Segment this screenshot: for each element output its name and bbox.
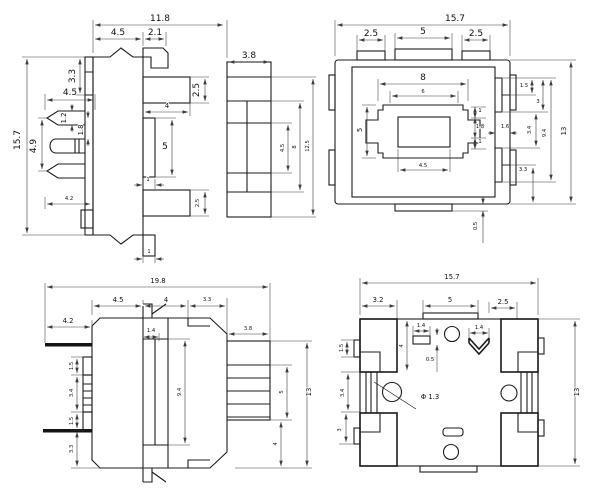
dimension-label: 8 [292,145,298,148]
vent-slot [413,336,430,344]
center-hole [398,117,450,147]
top-view-extension-lines [335,20,576,211]
dimension-label: 2.5 [469,29,483,39]
dimension-label: Φ 1.3 [421,393,439,401]
dimension-label: 1.4 [417,323,426,329]
corner-block-bl [360,413,397,466]
dimension-label: 1.5 [69,417,75,425]
mid-left-terminal-lines [366,372,371,413]
dimension-label: 0.5 [426,357,434,363]
dimension-label: 1.2 [60,113,68,124]
actuator-opening [366,105,480,158]
dimension-label: 2.5 [195,199,201,207]
dimension-label: 0.5 [473,222,479,230]
hole-left [383,383,402,402]
bottom-view-part [354,313,544,472]
lower-right-block [143,190,190,216]
right-bump-lower [510,150,516,185]
left-block-lower [83,412,92,430]
dimension-label: 19.8 [150,277,165,285]
top-view: 15.72.552.58654.511.811.61.533.49.4133.3… [329,14,576,243]
bottom-hook [143,468,166,482]
dimension-label: 9.4 [177,387,183,396]
dimension-label: 4 [399,344,405,348]
top-hook [143,48,168,68]
top-tab [423,313,478,319]
corner-block-bl-step [360,413,380,432]
side-housing-lines [227,77,271,192]
locating-boss-right [501,385,517,401]
dimension-label: 4.9 [29,139,39,154]
left-bump-upper [354,340,360,357]
dimension-label: 4.5 [63,88,77,98]
connector-face [227,341,270,420]
dimension-label: 4.5 [111,28,125,38]
corner-block-br-step [518,413,538,432]
bottom-tab [420,466,477,472]
mid-right-terminal [521,372,538,413]
dimension-label: 15.7 [444,273,459,281]
dimension-label: 3.3 [68,69,78,83]
dimension-label: 1 [478,139,481,145]
dimension-label: 5 [162,142,168,152]
top-tab-left [357,51,385,60]
dimension-label: 1 [478,108,481,114]
top-view-dimension-lines [337,25,571,243]
connector-pin-lines [227,365,270,417]
dimension-label: 4 [165,102,169,110]
flange-lower-block [81,210,93,228]
terminal-pin-middle [50,139,85,153]
front-view-part [47,48,271,256]
side-housing [227,62,271,217]
corner-block-tl [360,319,397,372]
top-tab-center [395,49,452,60]
dimension-label: 1.4 [147,328,156,334]
front-view: 11.84.52.13.83.34.51.21.84.915.74.22.545… [13,14,316,263]
dimension-label: 8 [420,73,426,83]
dimension-label: 3.4 [69,388,75,397]
dimension-label: 3.3 [519,167,527,173]
dimension-label: 4.5 [280,144,286,152]
center-slot [443,428,463,436]
front-view-dimension-lines [27,25,313,259]
dimension-label: 1.8 [476,124,484,130]
right-bump-upper [538,338,544,354]
drawing-canvas: 11.84.52.13.83.34.51.21.84.915.74.22.545… [0,0,600,489]
dimension-label: 5 [279,390,285,393]
front-view-labels: 11.84.52.13.83.34.51.21.84.915.74.22.545… [13,14,311,255]
mid-right-terminal-lines [527,372,532,413]
bottom-view: 15.73.252.51.440.51.4Φ 1.31.53.4313 [337,273,581,472]
dimension-label: 1 [147,249,150,255]
locating-boss-top [445,327,460,342]
dimension-label: 3.4 [340,388,346,397]
side-view-dimension-lines [47,287,307,466]
dimension-label: 1.5 [520,83,528,89]
dimension-label: 3 [337,428,343,431]
bottom-view-dimension-lines [346,283,575,464]
mid-left-terminal [360,372,377,413]
dimension-label: 4.2 [63,317,74,325]
right-bump-upper [510,75,516,110]
dimension-label: 1.5 [339,344,345,352]
left-block-upper [83,357,92,375]
dimension-label: 1.5 [69,362,75,370]
right-bump-lower [538,420,544,436]
upper-right-block [143,77,190,103]
dimension-label: 3.3 [69,445,75,453]
left-bump-lower [354,428,360,444]
corner-block-br [501,413,538,466]
dimension-label: 2.1 [148,28,162,38]
terminal-pin-bottom [47,164,85,178]
bottom-tab [395,204,452,211]
left-bump-upper [329,75,335,110]
dimension-label: 2.5 [192,83,202,97]
dimension-label: 12.5 [305,140,311,152]
top-tab-right [462,51,490,60]
corner-block-tl-step [360,352,380,372]
dimension-label: 3.4 [527,125,533,134]
dimension-label: 1.4 [475,325,484,331]
dimension-label: 3.8 [244,326,252,332]
locating-boss-bottom [444,445,459,460]
polarity-mark [469,338,489,354]
dimension-label: 5 [448,296,452,304]
dimension-label: 4 [164,296,168,304]
corner-block-tr-step [518,352,538,372]
dimension-label: 6 [421,89,424,95]
side-view: 19.84.543.34.21.43.81.53.41.53.39.45413 [43,277,313,482]
actuator-stem [143,118,155,177]
dimension-label: 3.3 [203,297,211,303]
dimension-label: 1.6 [501,124,509,130]
mounting-flange [85,57,93,235]
dimension-label: 2.5 [498,298,509,306]
dimension-label: 4.5 [113,296,124,304]
left-block-middle [83,375,92,412]
dimension-label: 15.7 [13,130,23,150]
dimension-label: 13 [560,127,568,136]
dimension-label: 5 [356,128,364,132]
dimension-label: 1 [146,177,149,183]
dimension-label: 11.8 [150,14,170,24]
dimension-label: 2.5 [364,29,378,39]
dimension-label: 4.5 [419,163,427,169]
left-bump-lower [329,150,335,185]
diameter-leader-line [374,382,416,409]
dimension-label: 13 [305,388,313,397]
dimension-label: 9.4 [542,128,548,137]
corner-block-tr [501,319,538,372]
dimension-label: 4.2 [65,196,73,202]
inner-rim [352,67,495,197]
dimension-label: 3.8 [242,51,257,61]
body-plate-outline [92,306,143,482]
body-plate-outline [93,48,143,244]
left-block-lines [83,384,92,405]
dimension-label: 5 [420,27,426,37]
dimension-label: 3 [536,99,539,105]
lead-wire-top [45,343,92,347]
front-view-extension-lines [22,20,316,263]
dimension-label: 1.8 [77,125,85,136]
dimension-label: 4 [273,442,279,446]
dimension-label: 3.2 [373,296,384,304]
flange-steps [85,72,93,95]
dimension-label: 13 [573,388,581,397]
right-inner-steps [495,78,510,182]
technical-drawing: 11.84.52.13.83.34.51.21.84.915.74.22.545… [0,0,600,489]
dimension-label: 15.7 [445,14,465,24]
